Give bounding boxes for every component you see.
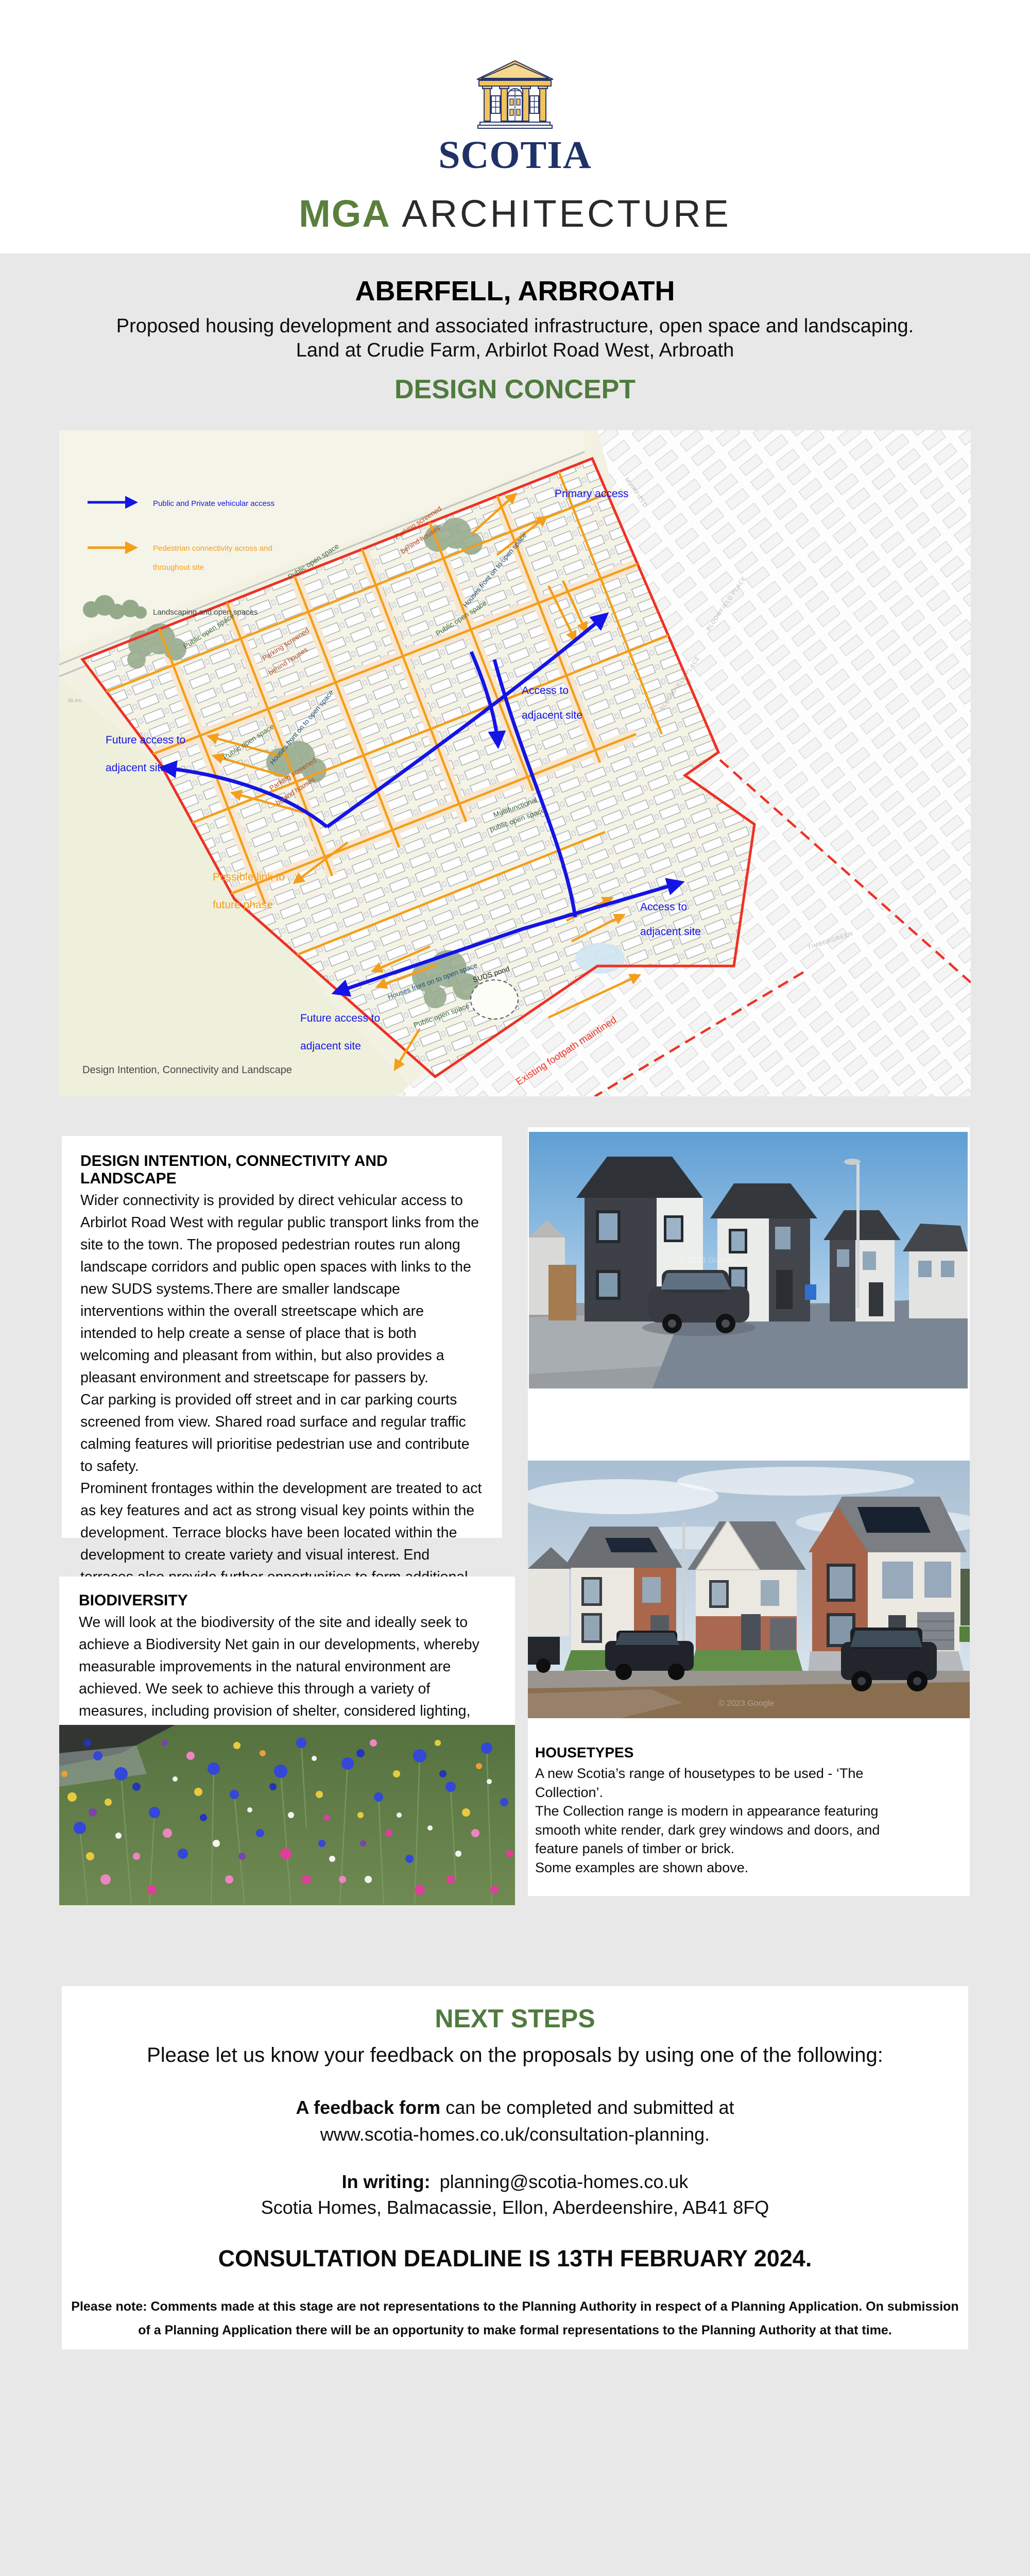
label-possible-link-2: future phase xyxy=(213,899,273,911)
consultation-poster: SCOTIA MGA ARCHITECTURE ABERFELL, ARBROA… xyxy=(0,0,1030,2576)
mga-bold: MGA xyxy=(299,192,391,235)
housetypes-line3: Some examples are shown above. xyxy=(535,1858,896,1877)
photo-watermark: © 2023 Google xyxy=(718,1699,774,1708)
photo-watermark: © 2023 Google xyxy=(679,1256,735,1265)
in-writing-line: In writing:planning@scotia-homes.co.uk xyxy=(62,2171,968,2193)
consultation-deadline: CONSULTATION DEADLINE IS 13TH FEBRUARY 2… xyxy=(62,2245,968,2272)
planning-note: Please note: Comments made at this stage… xyxy=(70,2295,960,2342)
design-intention-para2: Car parking is provided off street and i… xyxy=(80,1389,484,1478)
section-title-design-concept: DESIGN CONCEPT xyxy=(0,374,1030,405)
biodiversity-heading: BIODIVERSITY xyxy=(79,1592,495,1609)
label-access-mid-2: adjacent site xyxy=(522,709,582,721)
label-primary-access: Primary access xyxy=(555,488,629,500)
legend-landscaping-label: Landscaping and open spaces xyxy=(153,608,258,617)
postal-address: Scotia Homes, Balmacassie, Ellon, Aberde… xyxy=(62,2197,968,2218)
architecture-text: ARCHITECTURE xyxy=(391,192,731,235)
label-access-mid-1: Access to xyxy=(522,685,569,697)
subtitle-line1: Proposed housing development and associa… xyxy=(0,315,1030,337)
legend-pedestrian-label-line2: throughout site xyxy=(153,563,204,572)
brand-header: SCOTIA MGA ARCHITECTURE xyxy=(0,0,1030,253)
feedback-form-line: A feedback form can be completed and sub… xyxy=(62,2097,968,2119)
next-steps-card: NEXT STEPS Please let us know your feedb… xyxy=(62,1986,968,2349)
photo-brick-render-houses: © 2023 Google xyxy=(528,1461,970,1718)
design-intention-card: DESIGN INTENTION, CONNECTIVITY AND LANDS… xyxy=(62,1136,502,1538)
planning-email[interactable]: planning@scotia-homes.co.uk xyxy=(440,2171,689,2192)
photo-wildflower-meadow xyxy=(59,1725,515,1905)
housetypes-line2: The Collection range is modern in appear… xyxy=(535,1802,896,1858)
scotia-wordmark: SCOTIA xyxy=(0,133,1030,178)
legend-pedestrian-label-line1: Pedestrian connectivity across and xyxy=(153,544,272,553)
in-writing-label: In writing: xyxy=(342,2171,431,2192)
label-access-right-1: Access to xyxy=(640,901,687,913)
site-plan-map: Public and Private vehicular access Pede… xyxy=(59,430,971,1096)
design-intention-para1: Wider connectivity is provided by direct… xyxy=(80,1190,484,1389)
label-access-right-2: adjacent site xyxy=(640,926,701,938)
site-plan-map-card: Public and Private vehicular access Pede… xyxy=(59,430,971,1096)
label-future-access-left-1: Future access to xyxy=(106,734,185,746)
housetypes-line1: A new Scotia’s range of housetypes to be… xyxy=(535,1764,896,1802)
label-future-access-bottom-2: adjacent site xyxy=(300,1040,361,1052)
next-steps-intro: Please let us know your feedback on the … xyxy=(62,2044,968,2067)
biodiversity-card: BIODIVERSITY We will look at the biodive… xyxy=(59,1577,515,1905)
label-future-access-bottom-1: Future access to xyxy=(300,1012,380,1024)
consultation-url[interactable]: www.scotia-homes.co.uk/consultation-plan… xyxy=(62,2124,968,2145)
map-caption: Design Intention, Connectivity and Lands… xyxy=(82,1064,292,1076)
design-intention-heading: DESIGN INTENTION, CONNECTIVITY AND LANDS… xyxy=(80,1153,484,1188)
feedback-form-bold: A feedback form xyxy=(296,2097,440,2118)
label-future-access-left-2: adjacent site xyxy=(106,762,166,774)
housetypes-photos-card: © 2023 Google xyxy=(528,1127,970,1896)
next-steps-title: NEXT STEPS xyxy=(62,2004,968,2033)
housetypes-heading: HOUSETYPES xyxy=(535,1744,896,1761)
mga-architecture-wordmark: MGA ARCHITECTURE xyxy=(0,192,1030,235)
map-measurement: 38.4m xyxy=(67,698,82,704)
scotia-building-logo xyxy=(474,58,556,134)
legend-vehicular-label: Public and Private vehicular access xyxy=(153,499,274,508)
housetypes-section: HOUSETYPES A new Scotia’s range of house… xyxy=(535,1744,896,1877)
feedback-form-rest: can be completed and submitted at xyxy=(440,2097,734,2118)
page-title: ABERFELL, ARBROATH xyxy=(0,275,1030,307)
photo-street-dark-houses: © 2023 Google xyxy=(529,1132,968,1388)
label-possible-link-1: Possible link to xyxy=(213,871,285,883)
subtitle-line2: Land at Crudie Farm, Arbirlot Road West,… xyxy=(0,340,1030,362)
